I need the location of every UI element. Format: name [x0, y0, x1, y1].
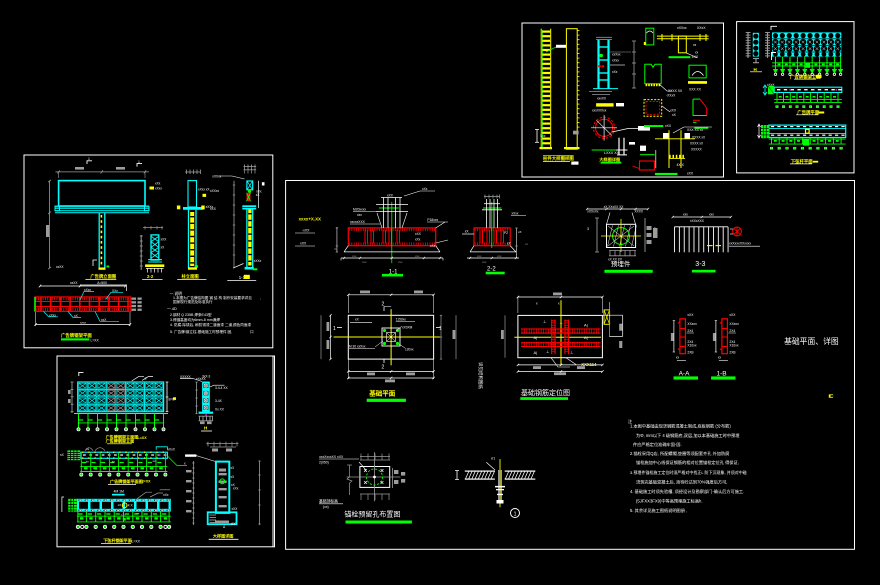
- svg-text:XXX XX: XXX XX: [689, 88, 702, 92]
- svg-text:2=XX: 2=XX: [142, 480, 151, 484]
- svg-text:XXxX: XXxX: [697, 26, 706, 30]
- svg-text:XXXXX: XXXXX: [691, 148, 703, 152]
- svg-text:XXX XX xx: XXX XX xx: [687, 128, 703, 132]
- svg-text:xXX: xXX: [415, 232, 422, 236]
- svg-text:xXX: xXX: [387, 194, 394, 198]
- svg-text:L=XX: L=XX: [132, 539, 141, 543]
- svg-text:⊥: ⊥: [560, 320, 564, 325]
- svg-text:2XB: 2XB: [729, 350, 736, 354]
- svg-text:XXX114: XXX114: [581, 362, 597, 367]
- svg-text:xxxXxxxXX xXX: xxxXxxxXX xXX: [319, 455, 344, 459]
- svg-text:xx: xx: [695, 50, 699, 54]
- svg-text:xXxx: xXxx: [512, 212, 519, 216]
- svg-text:xXX: xXX: [692, 55, 699, 59]
- svg-text:1: 1: [88, 157, 90, 161]
- svg-text:1150xx: 1150xx: [396, 317, 406, 321]
- svg-text:xxXX: xxXX: [56, 265, 64, 269]
- svg-text:xXx: xXx: [430, 244, 436, 248]
- svg-text:国家现行规范及标准执行: 国家现行规范及标准执行: [173, 299, 213, 304]
- svg-text:3-3: 3-3: [695, 261, 705, 268]
- svg-text:3-4-4 XX: 3-4-4 XX: [215, 386, 228, 390]
- svg-text:xXXxx: xXXxx: [677, 26, 687, 30]
- svg-text:,: ,: [260, 296, 261, 300]
- svg-text:xX XXxXX XX: xX XXxXX XX: [604, 205, 625, 209]
- svg-text:5. 其余详见施工图纸说明图册 ,: 5. 其余详见施工图纸说明图册 ,: [630, 507, 687, 514]
- svg-text:一.4D: 一.4D: [167, 307, 177, 311]
- svg-text:xXxx: xXxx: [612, 59, 619, 63]
- svg-text:L=XX: L=XX: [91, 339, 100, 343]
- svg-text:(xx): (xx): [323, 505, 329, 509]
- svg-text:xxxXXXxx: xxxXXXxx: [592, 109, 607, 113]
- svg-text:2X4: 2X4: [729, 329, 735, 333]
- svg-text:广告牌钢架平面: 广告牌钢架平面: [61, 332, 92, 339]
- svg-text:为Φ, mm以下 4 级钢筋底,双层,加以本基础施工时中预埋: 为Φ, mm以下 4 级钢筋底,双层,加以本基础施工时中预埋: [636, 432, 740, 439]
- svg-text:LXXX XX: LXXX XX: [604, 151, 620, 155]
- svg-text:下弦杆钢架平面: 下弦杆钢架平面: [103, 537, 132, 543]
- svg-text:xX0XM: xX0XM: [402, 325, 413, 329]
- svg-text:A|: A|: [534, 335, 538, 340]
- svg-text:xxxx: xxxx: [80, 321, 87, 325]
- svg-text:A=500: A=500: [97, 281, 107, 285]
- svg-text:ΔX: ΔX: [231, 522, 236, 526]
- svg-text:XXXX xX: XXXX xX: [690, 142, 704, 146]
- svg-text:X10xx: X10xx: [729, 344, 739, 348]
- svg-text:M 30 xxXxx: M 30 xxXxx: [349, 344, 366, 348]
- svg-text:2(050): 2(050): [319, 460, 329, 464]
- svg-text:x: x: [641, 148, 643, 152]
- svg-text:⊥: ⊥: [546, 349, 550, 354]
- svg-text:xXx: xXx: [415, 238, 421, 242]
- svg-text:A-A: A-A: [679, 370, 691, 377]
- svg-text:3: 3: [587, 227, 589, 231]
- svg-text:广告牌钢架平面图: 广告牌钢架平面图: [110, 478, 143, 484]
- svg-text:A|: A|: [584, 323, 588, 328]
- svg-text:锚栓施加中心线保证钢筋的相对位置锚栓定位孔 得保证,: 锚栓施加中心线保证钢筋的相对位置锚栓定位孔 得保证,: [636, 459, 739, 466]
- svg-text:广告牌钢架立面: 广告牌钢架立面: [106, 438, 135, 444]
- svg-text:M20xxxx: M20xxxx: [353, 207, 366, 211]
- svg-text:xx: xx: [718, 356, 722, 360]
- svg-text:xx: xx: [525, 242, 529, 246]
- svg-text:xXxX: xXxX: [767, 83, 775, 87]
- svg-text:xx: xx: [86, 460, 90, 464]
- svg-text:1: 1: [514, 511, 517, 517]
- svg-text:P18xxx: P18xxx: [427, 218, 438, 222]
- svg-text:2-2: 2-2: [147, 274, 154, 279]
- svg-text:-xXX: -xXX: [302, 229, 310, 233]
- svg-text:xXx: xXx: [612, 70, 618, 74]
- svg-text:xXxx: xXxx: [49, 313, 56, 317]
- svg-text:广告牌立面图: 广告牌立面图: [90, 273, 116, 280]
- svg-text:3.焊缝高度均为6mm-8 mm满焊: 3.焊缝高度均为6mm-8 mm满焊: [170, 317, 220, 322]
- svg-text:1.本图中基础由现浇钢筋混凝土制成,底板钢筋 (分布筋): 1.本图中基础由现浇钢筋混凝土制成,底板钢筋 (分布筋): [630, 422, 731, 429]
- svg-text:xx: xx: [112, 460, 116, 464]
- svg-text:xXX: xXX: [665, 124, 672, 128]
- svg-text:xXx: xXx: [233, 487, 239, 491]
- svg-text:3-4X: 3-4X: [215, 399, 223, 403]
- svg-text:-XXxX: -XXxX: [666, 94, 676, 98]
- svg-text:xXX: xXX: [687, 313, 694, 317]
- svg-text:口: 口: [250, 330, 254, 334]
- svg-text:xXX: xXX: [670, 109, 677, 113]
- svg-text:A|: A|: [534, 350, 538, 355]
- svg-text:XXXX xX: XXXX xX: [692, 136, 706, 140]
- svg-text:Lxx: Lxx: [541, 134, 546, 138]
- svg-text:2X4: 2X4: [687, 329, 693, 333]
- svg-text:2.钢材 Q 235B 焊条E43型: 2.钢材 Q 235B 焊条E43型: [170, 312, 212, 317]
- svg-text:3.预埋件锚栓施工定位时须严格对中找正L 防下沉现象, 并须: 3.预埋件锚栓施工定位时须严格对中找正L 防下沉现象, 并须对中碰: [630, 469, 747, 475]
- svg-text:xxx: xxx: [362, 260, 367, 264]
- svg-text:(5JFXX3FX9)中等高预埋施工标高h.: (5JFXX3FX9)中等高预埋施工标高h.: [636, 498, 703, 505]
- svg-text:xx: xx: [693, 43, 697, 47]
- svg-text:xxxxxXXX: xxxxxXXX: [350, 220, 366, 224]
- svg-text:1: 1: [439, 326, 442, 332]
- svg-text:xXxx: xXxx: [155, 187, 162, 191]
- svg-text:4X-X: 4X-X: [677, 163, 685, 167]
- svg-text:xX: xX: [518, 230, 522, 234]
- svg-text:xxx: xxx: [497, 254, 502, 258]
- svg-text:2.锚栓采用Q店, 所配螺帽,垫圈等须配套齐孔 外加防腐: 2.锚栓采用Q店, 所配螺帽,垫圈等须配套齐孔 外加防腐: [630, 450, 729, 457]
- svg-text:⊥: ⊥: [543, 319, 547, 324]
- svg-text:3x: 3x: [334, 247, 338, 251]
- svg-text:xXx: xXx: [155, 182, 161, 186]
- svg-text:xXXxXXX: xXXxXXX: [690, 219, 705, 223]
- svg-text:xxx: xxx: [683, 212, 688, 216]
- svg-text:xXx: xXx: [422, 187, 428, 191]
- svg-text:xXxx xX: xXxx xX: [198, 188, 210, 192]
- svg-text:xxx: xxx: [415, 254, 420, 258]
- svg-text:120xx: 120xx: [405, 347, 414, 351]
- svg-text:xXX: xXX: [161, 238, 168, 242]
- svg-text:P2: P2: [504, 231, 508, 235]
- svg-text:xx: xx: [86, 447, 90, 451]
- svg-text:xXXxXx: xXXxXx: [587, 209, 599, 213]
- svg-text:d: d: [145, 377, 147, 381]
- svg-text:2-2: 2-2: [487, 267, 496, 273]
- svg-text:xXx: xXx: [163, 493, 169, 497]
- svg-text:5. 广告牌/钢立柱-基础施工时预埋件 固,: 5. 广告牌/钢立柱-基础施工时预埋件 固,: [170, 329, 232, 334]
- svg-text:锚栓预留孔布置图: 锚栓预留孔布置图: [344, 510, 400, 519]
- svg-text:xxx: xxx: [352, 254, 357, 258]
- svg-text:2: 2: [382, 365, 385, 371]
- svg-text:xxxx+X.XX: xxxx+X.XX: [299, 217, 321, 222]
- svg-text:基础平面、详图: 基础平面、详图: [784, 336, 839, 346]
- svg-text:xx: xx: [153, 459, 157, 463]
- svg-text:详见结构图纸: 详见结构图纸: [477, 362, 484, 389]
- svg-text:4. 防腐-除锈后, 刷防锈漆二道面漆 二道,颜色同: 4. 防腐-除锈后, 刷防锈漆二道面漆 二道,颜色同面漆: [170, 322, 251, 327]
- svg-text:xxx: xxx: [477, 254, 482, 258]
- svg-text:1: 1: [333, 326, 336, 332]
- svg-text:基础顶标高: 基础顶标高: [319, 499, 338, 504]
- svg-text:xXX: xXX: [210, 207, 217, 211]
- svg-text:A|: A|: [584, 335, 588, 340]
- svg-text:xxXX: xxXX: [70, 281, 78, 285]
- svg-text:xXX: xXX: [687, 172, 694, 176]
- svg-text:4M 1M: 4M 1M: [114, 490, 125, 494]
- svg-text:xX: xX: [118, 503, 122, 507]
- svg-text:L=XX: L=XX: [138, 436, 148, 440]
- svg-text:2XB: 2XB: [687, 350, 694, 354]
- svg-text:xXXxx: xXXxx: [210, 189, 219, 193]
- svg-text:xxX: xxX: [101, 318, 107, 322]
- svg-text:xxx: xxx: [709, 212, 714, 216]
- svg-text:X10xx: X10xx: [687, 344, 697, 348]
- svg-text:xxXxxxXXxxxx: xxXxxxXXxxxx: [729, 242, 751, 246]
- svg-text:xXXx: xXXx: [254, 259, 262, 263]
- svg-text:大样图详图: 大样图详图: [213, 533, 233, 539]
- svg-text:基础钢筋定位图: 基础钢筋定位图: [521, 388, 570, 397]
- svg-text:xXXxx: xXXxx: [212, 175, 221, 179]
- svg-text:xXxX: xXxX: [167, 447, 175, 451]
- svg-text:σ1: σ1: [491, 457, 495, 461]
- svg-text:XXx: XXx: [112, 289, 118, 293]
- svg-text:3xX-3: 3xX-3: [202, 374, 211, 378]
- svg-text:Xx XX: Xx XX: [215, 408, 225, 412]
- svg-text:XXxxx: XXxxx: [729, 322, 739, 326]
- svg-text:xx: xx: [676, 356, 680, 360]
- svg-text:xxx: xxx: [482, 260, 487, 264]
- svg-text:xxxXX: xxxXX: [597, 97, 607, 101]
- svg-text:xxx: xxx: [398, 260, 403, 264]
- svg-text:1-B: 1-B: [717, 370, 727, 377]
- svg-text:件应严格定位准确牢固-固.: 件应严格定位准确牢固-固.: [633, 441, 682, 448]
- svg-text:xXX: xXX: [232, 507, 239, 511]
- svg-text:浇筑完基础混凝土后, 须待砼达到70%强度后方可,: 浇筑完基础混凝土后, 须待砼达到70%强度后方可,: [636, 478, 727, 485]
- svg-text:柱立面图: 柱立面图: [182, 273, 200, 280]
- svg-text:1: 1: [138, 160, 140, 164]
- svg-text:XXxxx: XXxxx: [687, 322, 697, 326]
- svg-text:XXXX: XXXX: [635, 210, 644, 214]
- svg-text:xxXxx: xxXxx: [612, 53, 621, 57]
- svg-text:xXX: xXX: [729, 313, 736, 317]
- svg-text:预埋件: 预埋件: [611, 259, 631, 268]
- svg-text:4. 基础施工时须先验槽, 须经设计及勘察部门-确认后方可: 4. 基础施工时须先验槽, 须经设计及勘察部门-确认后方可施工.: [630, 488, 744, 495]
- svg-text:XXXX XX: XXXX XX: [668, 89, 683, 93]
- svg-text:基础平面: 基础平面: [368, 389, 396, 398]
- svg-text:⊥: ⊥: [570, 350, 574, 355]
- svg-text:XXXXX: XXXXX: [180, 375, 192, 379]
- svg-text:xxx: xxx: [357, 213, 362, 217]
- svg-text:xXX: xXX: [300, 242, 307, 246]
- svg-text:xXxx: xXxx: [84, 288, 91, 292]
